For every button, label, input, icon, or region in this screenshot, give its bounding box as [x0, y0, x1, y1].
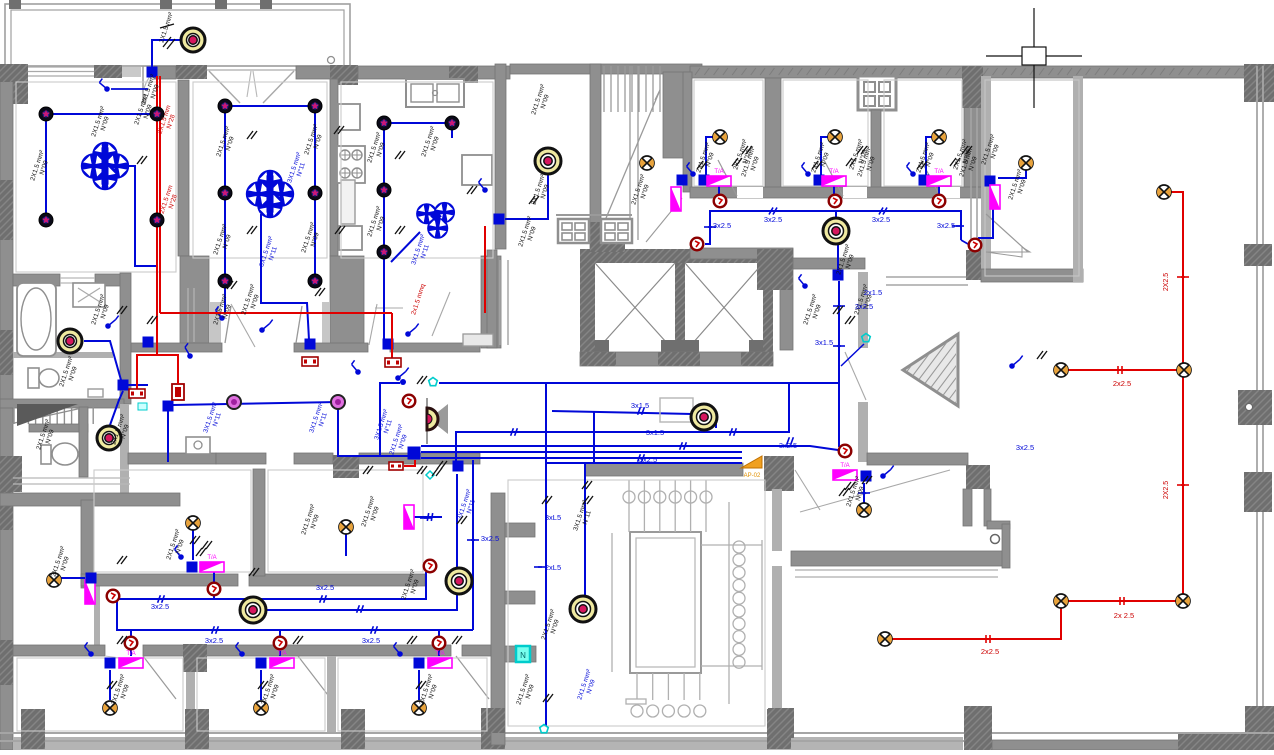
- svg-text:3x2.5: 3x2.5: [872, 215, 890, 224]
- svg-text:3x2.5: 3x2.5: [639, 455, 657, 464]
- svg-text:3x2.5: 3x2.5: [713, 221, 731, 230]
- svg-text:3x2.5: 3x2.5: [779, 441, 797, 450]
- svg-text:3x2.5: 3x2.5: [937, 221, 955, 230]
- svg-text:3xL5: 3xL5: [545, 513, 561, 522]
- svg-text:3x2.5: 3x2.5: [151, 602, 169, 611]
- svg-text:2X2.5: 2X2.5: [1163, 273, 1170, 291]
- svg-text:T/A: T/A: [840, 463, 849, 469]
- svg-text:T/A: T/A: [207, 555, 216, 561]
- svg-text:2xL5: 2xL5: [545, 563, 561, 572]
- svg-text:2x2.5: 2x2.5: [981, 647, 999, 656]
- svg-text:3x1.5: 3x1.5: [815, 338, 833, 347]
- svg-text:3x2.5: 3x2.5: [1016, 443, 1034, 452]
- svg-text:T/A: T/A: [829, 169, 838, 175]
- svg-text:N: N: [520, 651, 526, 660]
- svg-text:2x2.5: 2x2.5: [1113, 379, 1131, 388]
- svg-text:3x1.5: 3x1.5: [646, 428, 664, 437]
- svg-text:3x2.5: 3x2.5: [855, 302, 873, 311]
- svg-text:2x 2.5: 2x 2.5: [1114, 611, 1134, 620]
- svg-text:T/A: T/A: [934, 169, 943, 175]
- svg-text:T/A: T/A: [435, 651, 444, 657]
- svg-text:3x2.5: 3x2.5: [362, 636, 380, 645]
- svg-text:3x2.5: 3x2.5: [481, 534, 499, 543]
- svg-text:3x2.5: 3x2.5: [316, 583, 334, 592]
- svg-text:3x1.5: 3x1.5: [631, 401, 649, 410]
- svg-text:T/A: T/A: [714, 169, 723, 175]
- svg-text:2x1.5: 2x1.5: [864, 288, 882, 297]
- svg-text:AP-02: AP-02: [744, 473, 761, 479]
- svg-text:3x2.5: 3x2.5: [205, 636, 223, 645]
- svg-text:2X2.5: 2X2.5: [1163, 481, 1170, 499]
- svg-text:T/A: T/A: [126, 651, 135, 657]
- svg-text:3x2.5: 3x2.5: [764, 215, 782, 224]
- svg-text:T/A: T/A: [277, 651, 286, 657]
